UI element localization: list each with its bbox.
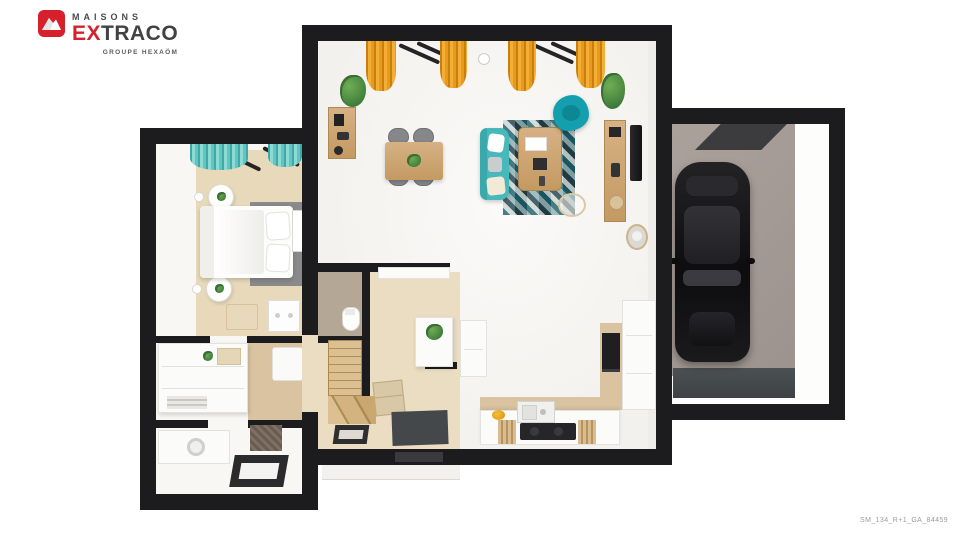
toilet [342, 307, 360, 331]
brand-logo: MAISONS EXTRACO GROUPE HEXAÖM [38, 10, 178, 56]
sink-faucet [540, 409, 546, 415]
coffee-table-tray [525, 137, 547, 151]
tv-console [604, 120, 626, 222]
plant-top-right [601, 73, 625, 109]
smoke-detector [478, 53, 490, 65]
bed-throw [200, 206, 214, 278]
bed-pillow-1 [265, 211, 291, 241]
bar-stool-2 [578, 420, 596, 444]
front-door [395, 452, 443, 462]
tv-console-pot [609, 195, 624, 210]
wire-side-table [558, 193, 586, 217]
car-mirror-right [746, 258, 755, 264]
console-table [328, 107, 356, 159]
kitchen-right-units [622, 300, 656, 410]
brand-extraco: EXTRACO [72, 23, 178, 44]
staircase [328, 340, 362, 396]
entry-doormat [391, 410, 448, 446]
mountain-icon [38, 10, 65, 37]
radiator [292, 210, 302, 252]
garage-floor [671, 124, 829, 404]
vanity-drawer-line-1 [162, 366, 244, 367]
pouf [226, 304, 258, 330]
kitchen-sink [517, 401, 555, 423]
bed-duvet [214, 210, 264, 274]
suite-doorway [302, 335, 318, 412]
sofa-backrest [480, 128, 487, 200]
bar-stool-1 [498, 420, 516, 444]
curtain-2 [440, 41, 467, 88]
nightstand-2 [206, 276, 232, 302]
tv-screen [630, 125, 642, 181]
dining-table [385, 142, 443, 180]
plant-top-left [340, 75, 366, 107]
built-in-oven [602, 333, 620, 372]
washing-machine [158, 430, 230, 464]
console-decor-2 [337, 132, 349, 140]
main-house-walls [302, 25, 672, 465]
coffee-table-book [533, 158, 547, 170]
vanity-plant [203, 351, 213, 361]
car-hood [689, 312, 735, 346]
sofa [480, 128, 509, 200]
kitchen-tall-tile-column [600, 323, 622, 410]
door-knob-2 [288, 313, 293, 318]
inner-wall-2a [156, 420, 208, 428]
garage-door-mat-bottom [673, 368, 795, 398]
nightstand-plant-1 [217, 192, 226, 201]
coffee-table-phone [539, 176, 545, 186]
inner-wall-1a [156, 336, 210, 343]
bed [200, 206, 293, 278]
curtain-1 [366, 41, 396, 91]
vanity-towels [167, 396, 207, 409]
vanity-drawer-line-2 [162, 388, 244, 389]
toilet-tank [345, 309, 355, 315]
burner-2 [554, 427, 563, 436]
bathroom-vanity [158, 343, 248, 413]
bathroom-door-panel [268, 300, 300, 332]
bed-pillow-2 [265, 243, 290, 272]
coffee-table [518, 127, 562, 191]
vanity-box [217, 348, 241, 365]
basket-blanket [632, 231, 642, 241]
brand-maisons: MAISONS [72, 12, 178, 22]
reference-code: SM_134_R+1_GA_84459 [860, 517, 948, 524]
sofa-pillow-white [487, 133, 505, 153]
dining-chair-1 [388, 128, 409, 143]
bedroom-suite-walls [140, 128, 318, 510]
tv-console-decor-2 [611, 163, 620, 177]
shower-tray [272, 347, 302, 381]
console-decor-1 [334, 114, 344, 126]
car-roof [684, 206, 740, 264]
dining-chair-2 [413, 128, 434, 143]
kitchen-counter-return [415, 317, 453, 367]
unit-line-1 [626, 335, 652, 336]
sofa-pillow-gray [488, 157, 502, 172]
console-decor-3 [334, 146, 343, 155]
tall-cabinet-fridge [460, 320, 487, 377]
tv-console-decor-1 [609, 127, 621, 137]
table-centerpiece-plant [407, 154, 421, 167]
entry-shelf [378, 267, 450, 279]
fruit-bowl [492, 410, 505, 420]
sofa-throw [486, 176, 506, 196]
brand-subtitle: GROUPE HEXAÖM [72, 49, 178, 56]
entry-doorstep [322, 465, 460, 480]
floor-hatch [229, 455, 289, 487]
brand-extraco-traco: TRACO [101, 22, 178, 45]
wall-sconce-1 [194, 192, 204, 202]
car-rear-window [686, 176, 738, 196]
curtain-3 [508, 41, 536, 91]
car [675, 162, 750, 362]
armchair-seat [562, 105, 580, 121]
brand-extraco-ex: EX [72, 22, 101, 45]
burner-1 [530, 427, 539, 436]
unit-line-2 [626, 373, 652, 374]
bedroom-curtain-right [268, 144, 302, 167]
laundry-mat [250, 425, 282, 451]
car-mirror-left [671, 258, 679, 264]
armchair [553, 95, 589, 131]
sink-basin [522, 405, 537, 420]
bedroom-curtain-left [190, 144, 248, 170]
floor-plan-page: MAISONS EXTRACO GROUPE HEXAÖM [0, 0, 960, 540]
cabinet-split-line [464, 349, 483, 350]
bedroom-suite-floor [156, 144, 302, 494]
kitchen-plant [426, 324, 443, 340]
cooktop [520, 423, 576, 440]
staircase-winders [328, 396, 376, 424]
washing-machine-door [187, 438, 205, 456]
inner-wall-stairs [362, 270, 370, 402]
car-windshield [683, 270, 741, 286]
blanket-basket [626, 224, 648, 250]
living-area-floor [318, 41, 656, 449]
door-knob-1 [275, 313, 280, 318]
curtain-4 [576, 41, 605, 88]
nightstand-plant-2 [215, 284, 224, 293]
box-flap-line [375, 395, 403, 399]
wall-sconce-2 [192, 284, 202, 294]
garage-walls [655, 108, 845, 420]
inner-wall-1b [247, 336, 302, 343]
entry-framed-mat [333, 425, 370, 444]
